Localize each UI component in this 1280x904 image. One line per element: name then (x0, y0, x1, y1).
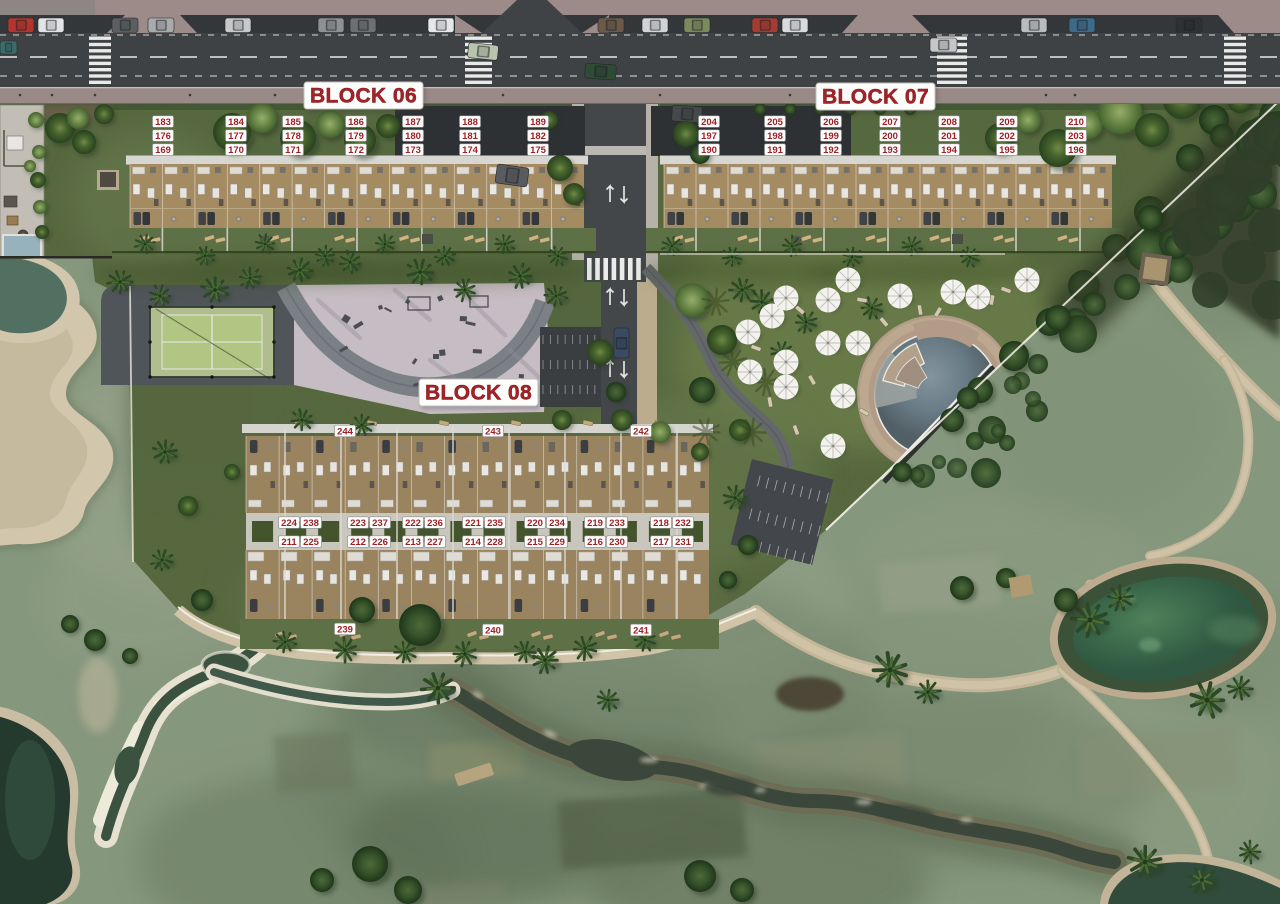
svg-text:171: 171 (285, 145, 302, 156)
svg-text:196: 196 (1068, 145, 1084, 156)
svg-text:BLOCK 06: BLOCK 06 (310, 85, 417, 108)
svg-text:215: 215 (527, 537, 544, 548)
svg-text:173: 173 (405, 145, 421, 156)
svg-text:184: 184 (228, 117, 245, 128)
svg-text:181: 181 (462, 131, 479, 142)
svg-text:224: 224 (281, 518, 298, 529)
svg-text:185: 185 (285, 117, 302, 128)
svg-text:237: 237 (372, 518, 388, 529)
svg-text:216: 216 (587, 537, 603, 548)
svg-text:188: 188 (462, 117, 478, 128)
svg-text:186: 186 (348, 117, 364, 128)
svg-text:232: 232 (675, 518, 691, 529)
svg-text:234: 234 (549, 518, 566, 529)
svg-text:203: 203 (1068, 131, 1084, 142)
svg-text:193: 193 (882, 145, 898, 156)
svg-text:200: 200 (882, 131, 898, 142)
svg-text:207: 207 (882, 117, 898, 128)
svg-text:175: 175 (530, 145, 547, 156)
svg-text:240: 240 (485, 625, 501, 636)
svg-text:180: 180 (405, 131, 421, 142)
svg-text:221: 221 (465, 518, 482, 529)
svg-text:199: 199 (823, 131, 839, 142)
svg-text:220: 220 (527, 518, 543, 529)
svg-text:182: 182 (530, 131, 546, 142)
svg-text:209: 209 (999, 117, 1015, 128)
svg-text:190: 190 (701, 145, 717, 156)
svg-text:205: 205 (767, 117, 784, 128)
svg-text:187: 187 (405, 117, 421, 128)
svg-text:213: 213 (405, 537, 421, 548)
svg-text:241: 241 (633, 625, 650, 636)
svg-text:201: 201 (941, 131, 958, 142)
svg-text:194: 194 (941, 145, 958, 156)
svg-text:244: 244 (337, 426, 354, 437)
svg-text:183: 183 (155, 117, 171, 128)
svg-text:176: 176 (155, 131, 171, 142)
svg-text:197: 197 (701, 131, 717, 142)
svg-text:172: 172 (348, 145, 364, 156)
svg-text:204: 204 (701, 117, 718, 128)
svg-text:227: 227 (427, 537, 443, 548)
svg-text:226: 226 (372, 537, 388, 548)
svg-text:231: 231 (675, 537, 692, 548)
svg-text:189: 189 (530, 117, 546, 128)
svg-text:169: 169 (155, 145, 171, 156)
svg-text:235: 235 (487, 518, 504, 529)
svg-text:236: 236 (427, 518, 443, 529)
svg-text:178: 178 (285, 131, 301, 142)
svg-text:202: 202 (999, 131, 1015, 142)
svg-text:239: 239 (337, 624, 353, 635)
svg-text:243: 243 (485, 426, 501, 437)
svg-text:214: 214 (465, 537, 482, 548)
svg-text:242: 242 (633, 426, 649, 437)
svg-text:229: 229 (549, 537, 565, 548)
svg-text:228: 228 (487, 537, 503, 548)
svg-text:206: 206 (823, 117, 839, 128)
svg-text:230: 230 (609, 537, 625, 548)
svg-text:219: 219 (587, 518, 603, 529)
svg-text:192: 192 (823, 145, 839, 156)
svg-text:212: 212 (350, 537, 366, 548)
svg-text:222: 222 (405, 518, 421, 529)
svg-text:BLOCK 07: BLOCK 07 (822, 86, 929, 109)
svg-text:218: 218 (653, 518, 669, 529)
svg-text:208: 208 (941, 117, 957, 128)
svg-text:174: 174 (462, 145, 479, 156)
svg-text:233: 233 (609, 518, 625, 529)
svg-text:223: 223 (350, 518, 366, 529)
svg-text:217: 217 (653, 537, 669, 548)
svg-text:195: 195 (999, 145, 1016, 156)
svg-text:210: 210 (1068, 117, 1084, 128)
svg-text:170: 170 (228, 145, 244, 156)
svg-text:177: 177 (228, 131, 244, 142)
svg-text:191: 191 (767, 145, 784, 156)
svg-text:198: 198 (767, 131, 783, 142)
svg-text:225: 225 (303, 537, 320, 548)
svg-text:179: 179 (348, 131, 364, 142)
svg-text:BLOCK 08: BLOCK 08 (425, 382, 532, 405)
svg-text:238: 238 (303, 518, 319, 529)
svg-text:211: 211 (281, 537, 297, 548)
